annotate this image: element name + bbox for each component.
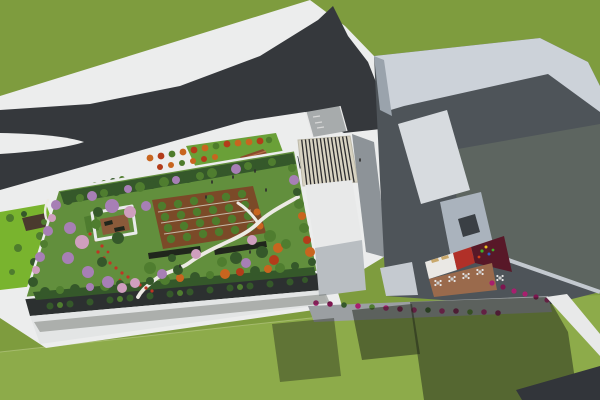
- architectural-rendering: [0, 0, 600, 400]
- low-building-roof: [305, 180, 362, 248]
- main-building: [374, 38, 600, 310]
- striped-canopy: [298, 136, 358, 186]
- low-building-face: [315, 240, 366, 296]
- lower-wing-sloped-wall: [380, 262, 418, 296]
- rendering-stage: [0, 0, 600, 400]
